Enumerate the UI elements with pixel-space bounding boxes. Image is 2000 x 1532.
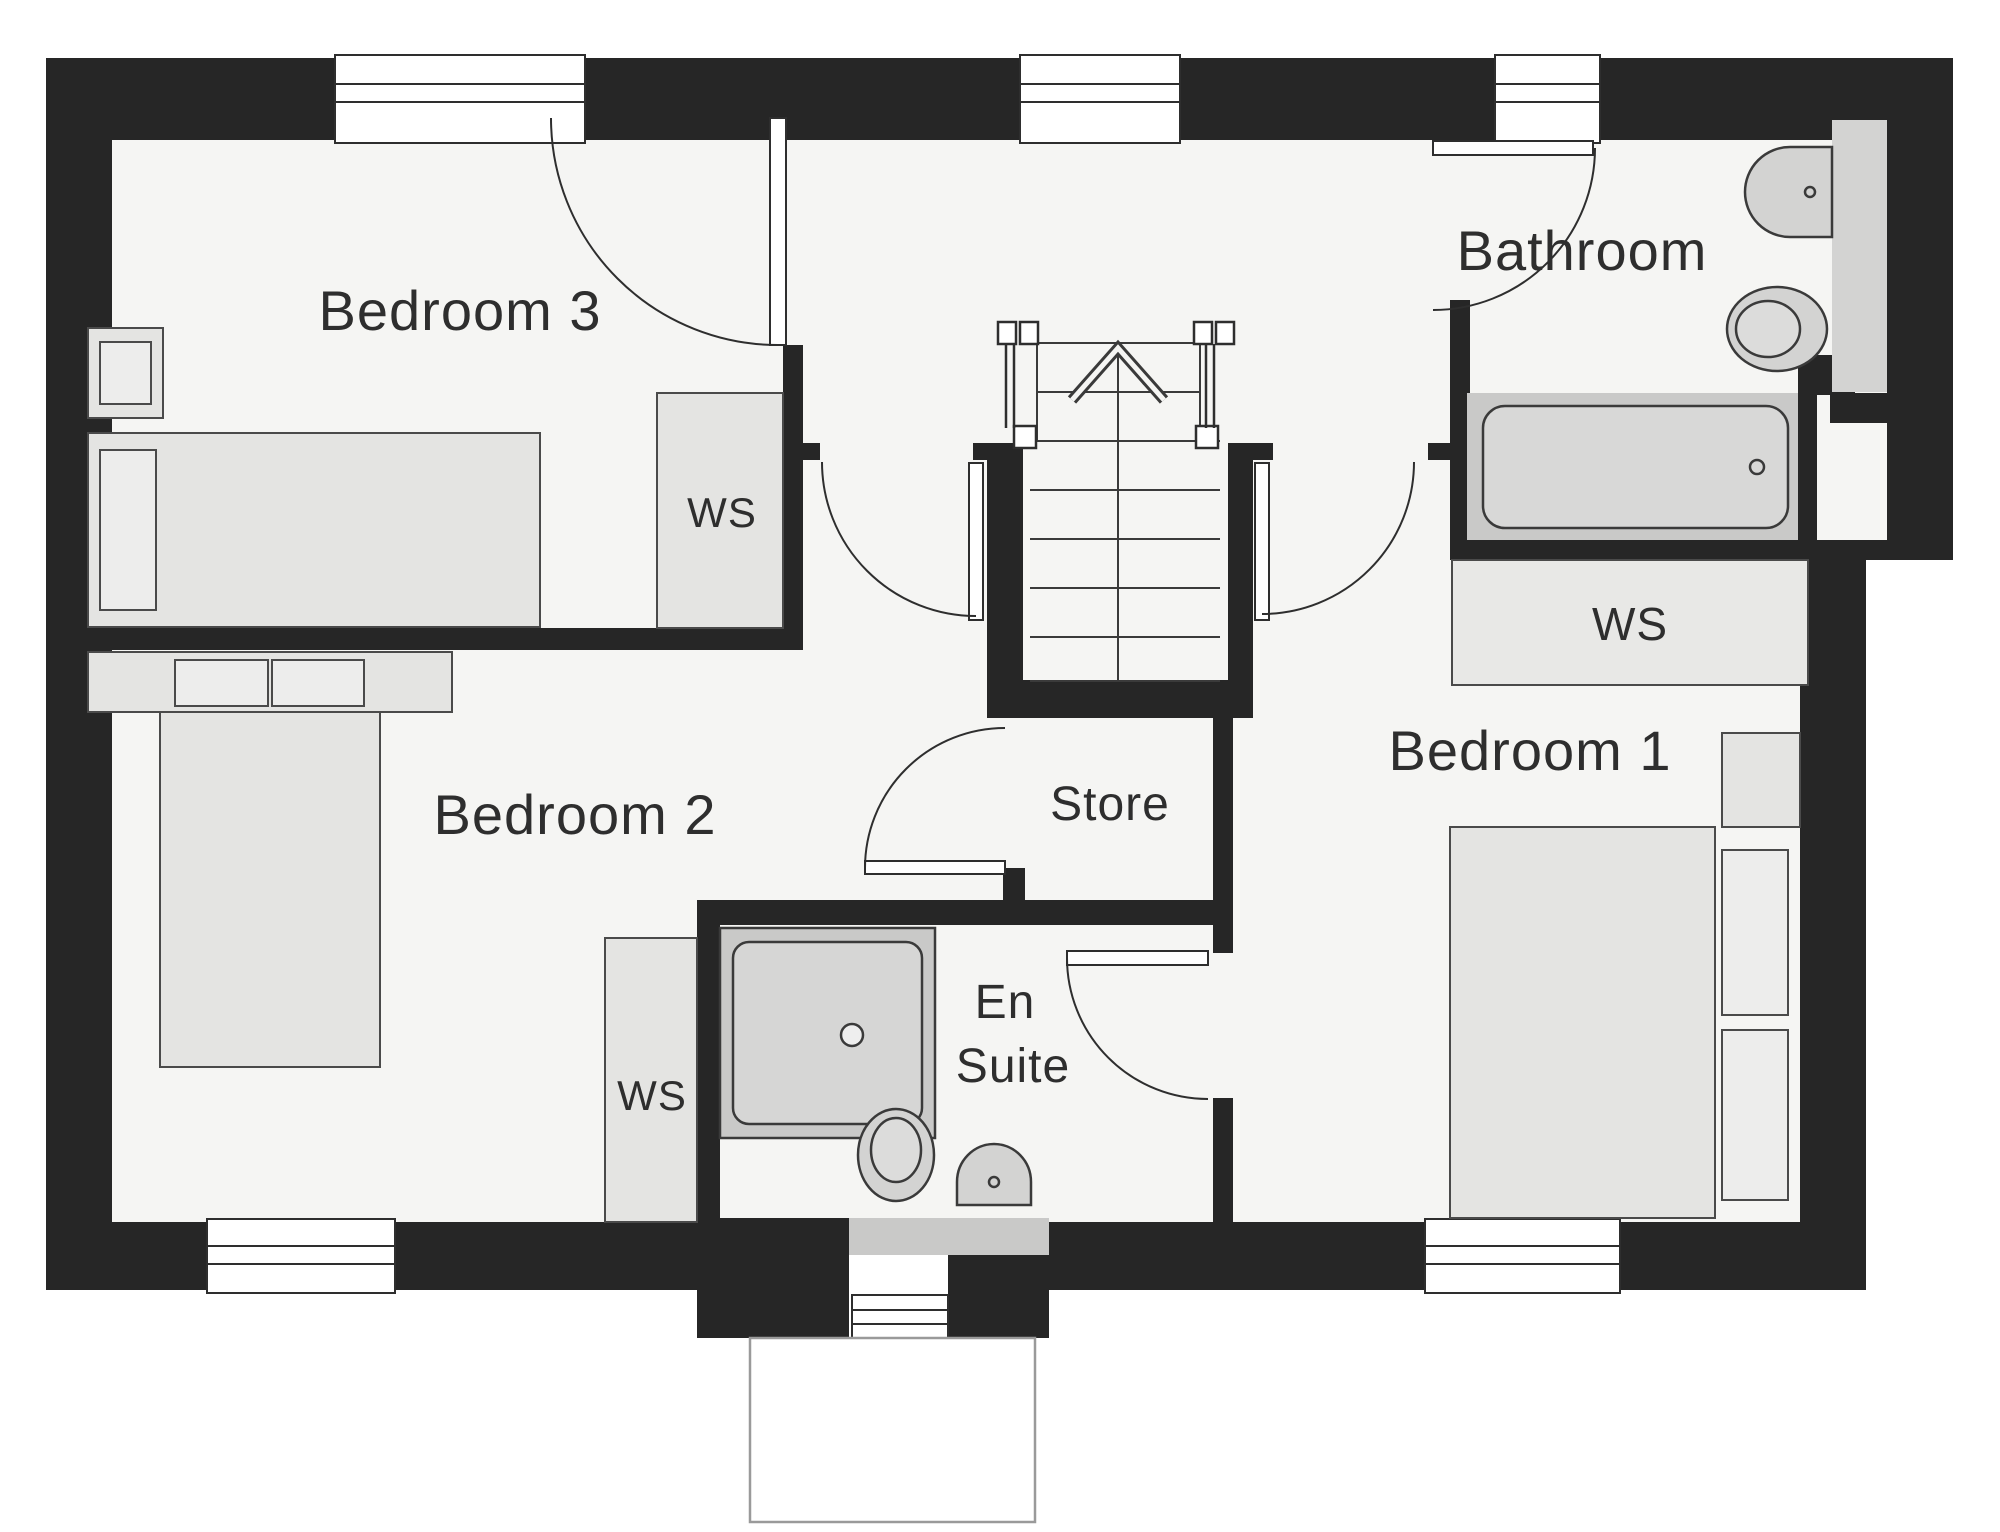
window-bathroom xyxy=(1495,55,1600,143)
bath-tub xyxy=(1483,406,1788,528)
label-bathroom: Bathroom xyxy=(1457,219,1708,282)
floor-plan: Bedroom 3 Bathroom WS WS Bedroom 1 Bedro… xyxy=(0,0,2000,1532)
label-bedroom3: Bedroom 3 xyxy=(319,279,602,342)
label-bedroom1: Bedroom 1 xyxy=(1389,719,1672,782)
bedroom1-pillow-top xyxy=(1722,850,1788,1015)
bedroom1-nightstand xyxy=(1722,733,1800,827)
window-bedroom2 xyxy=(207,1219,395,1293)
bedroom2-headboard xyxy=(88,652,452,712)
bedroom2-bed xyxy=(160,712,380,1067)
label-ensuite-line1: En xyxy=(975,976,1036,1029)
shower-drain xyxy=(841,1024,863,1046)
bedroom2-pillow-right xyxy=(272,660,364,706)
bedroom1-pillow-bottom xyxy=(1722,1030,1788,1200)
exterior-mask xyxy=(1866,557,2000,1302)
ensuite-basin xyxy=(957,1144,1031,1205)
floor-plan-drawing: Bedroom 3 Bathroom WS WS Bedroom 1 Bedro… xyxy=(0,0,2000,1532)
label-store: Store xyxy=(1050,778,1170,831)
bathroom-vanity xyxy=(1832,120,1887,392)
canopy-outline xyxy=(750,1338,1035,1522)
ensuite-bay-floor xyxy=(849,1218,1049,1255)
label-ensuite-line2: Suite xyxy=(956,1040,1070,1093)
bathroom-basin xyxy=(1745,147,1832,237)
window-landing xyxy=(1020,55,1180,143)
label-ws-bedroom2: WS xyxy=(617,1072,687,1119)
window-bedroom3 xyxy=(335,55,585,143)
bedroom2-pillow-left xyxy=(175,660,268,706)
label-ws-bedroom3: WS xyxy=(687,489,757,536)
label-ws-bedroom1: WS xyxy=(1592,598,1668,650)
bedroom1-bed xyxy=(1450,827,1715,1218)
window-bedroom1 xyxy=(1425,1219,1620,1293)
bedroom3-pillow xyxy=(100,450,156,610)
bedroom1-furniture xyxy=(1450,560,1808,1218)
label-bedroom2: Bedroom 2 xyxy=(434,783,717,846)
